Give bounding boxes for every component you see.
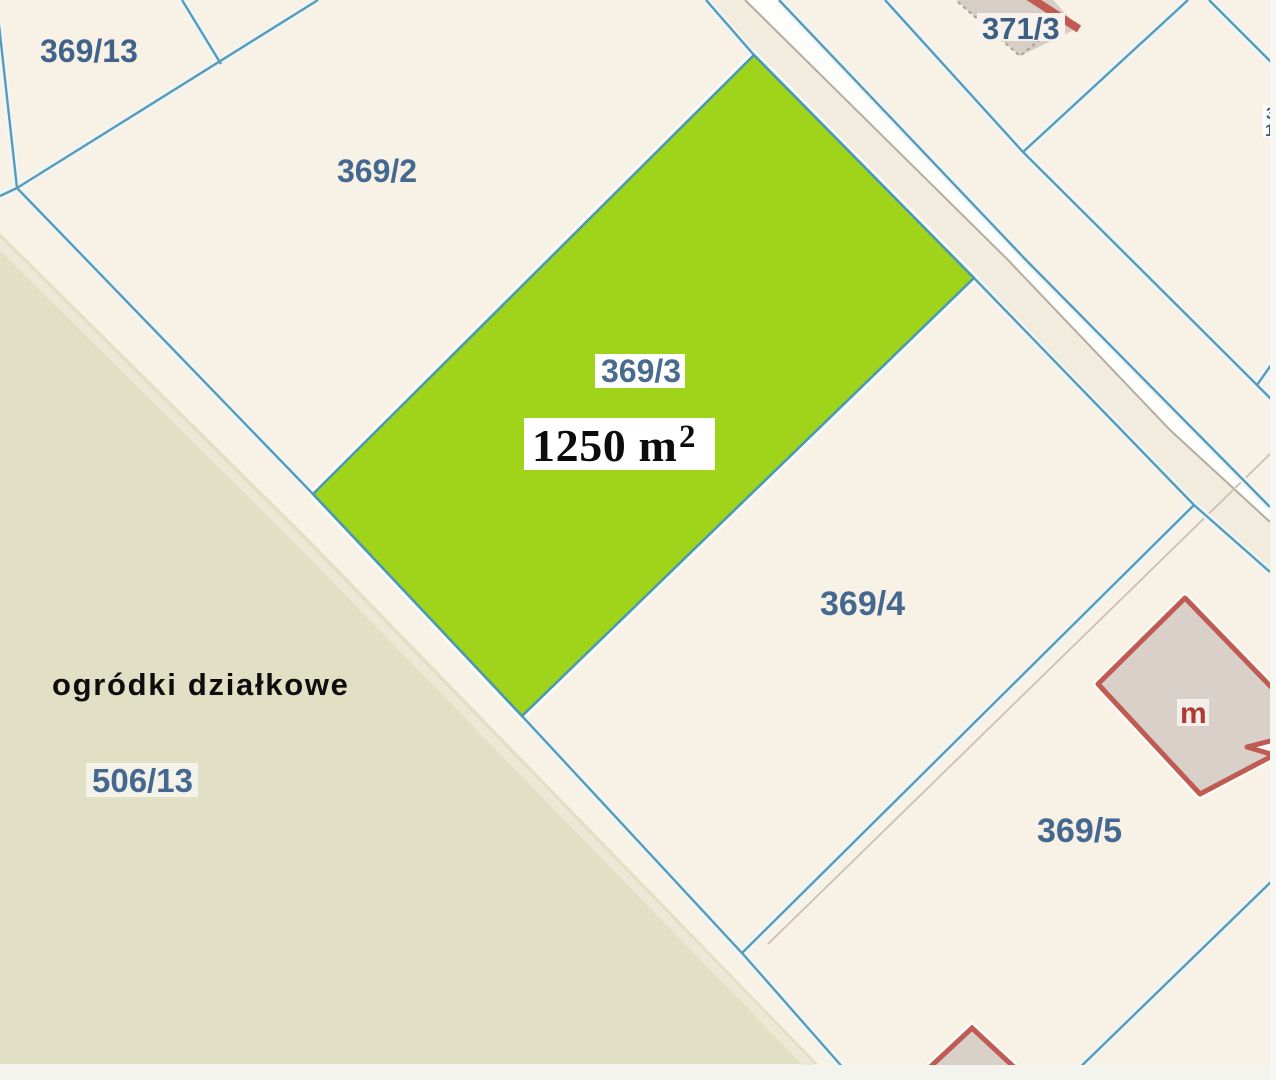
svg-text:ogródki działkowe: ogródki działkowe [52,667,350,702]
svg-text:369/4: 369/4 [820,585,905,623]
svg-text:2: 2 [679,419,696,455]
svg-text:369/5: 369/5 [1037,812,1122,850]
svg-text:369/13: 369/13 [40,33,138,69]
svg-text:369/2: 369/2 [337,153,417,189]
svg-text:1250 m: 1250 m [532,420,677,471]
svg-text:369/3: 369/3 [601,353,681,389]
svg-text:506/13: 506/13 [92,762,193,799]
svg-text:371/3: 371/3 [982,11,1060,46]
svg-text:m: m [1180,697,1207,730]
